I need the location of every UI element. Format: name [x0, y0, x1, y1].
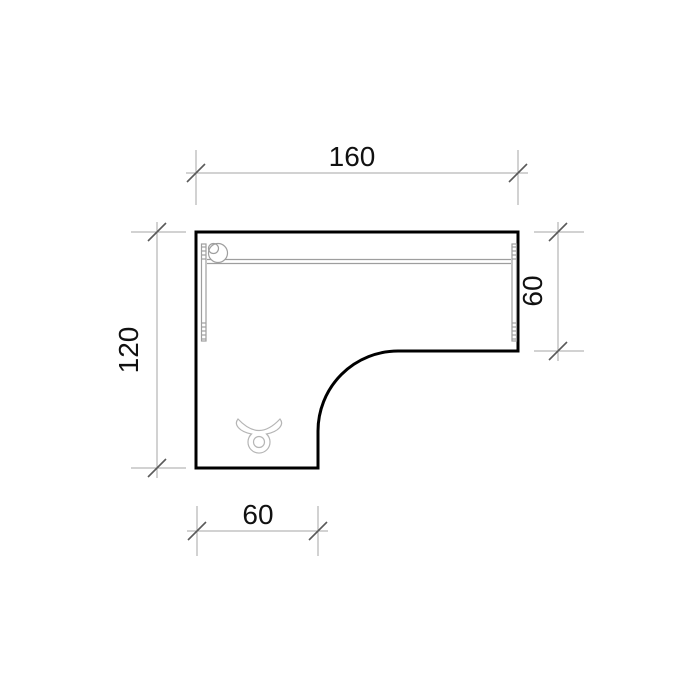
- dimension-top: 160: [186, 141, 528, 205]
- dimension-right: 60: [517, 222, 584, 361]
- desk-outline: [196, 232, 518, 468]
- dimension-bottom: 60: [187, 499, 328, 556]
- desk-floor-plan-drawing: 160 120 60: [0, 0, 700, 700]
- dimension-label-right: 60: [517, 275, 548, 306]
- dimension-label-left: 120: [113, 327, 144, 374]
- dimension-label-bottom: 60: [242, 499, 273, 530]
- desk-leg-hub: [254, 437, 265, 448]
- dimension-label-top: 160: [329, 141, 376, 172]
- dimension-left: 120: [113, 222, 186, 478]
